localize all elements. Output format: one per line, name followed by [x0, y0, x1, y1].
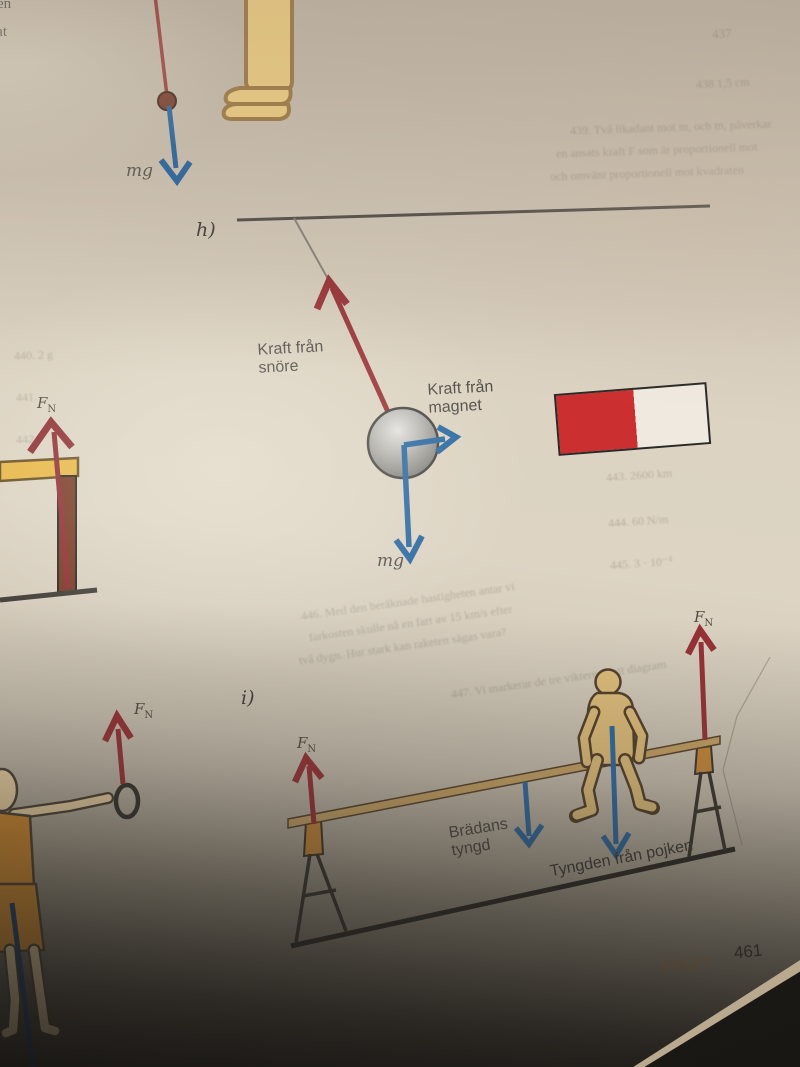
page-edge-text-1: ren — [0, 0, 11, 13]
right-trestle — [689, 746, 725, 857]
left-partial-diagram — [0, 422, 97, 600]
string-force-label: Kraft från snöre — [257, 338, 325, 377]
normal-force-arrow-hand — [105, 716, 131, 784]
standing-legs-figure — [224, 0, 292, 119]
ring-object — [116, 785, 138, 817]
board-weight-arrow — [516, 782, 542, 844]
shorts — [0, 884, 44, 952]
page-edge-text-2: lat — [0, 24, 7, 41]
ceiling-line — [237, 206, 710, 220]
tank-top — [0, 812, 34, 888]
normal-force-label-hand: FN — [134, 700, 153, 721]
person-fragment — [0, 716, 138, 1067]
normal-force-label-right: FN — [694, 608, 713, 629]
section-label-i: i) — [241, 688, 255, 709]
ground-line-i — [291, 849, 735, 946]
gravity-label-h: mg — [377, 552, 404, 571]
normal-force-arrow-right — [688, 630, 714, 740]
string-line — [294, 218, 328, 279]
normal-force-label-table: FN — [37, 394, 56, 415]
textbook-page-photo: 437438 1,5 cm439. Två likadant mot m, oc… — [0, 0, 800, 1067]
magnet-block — [554, 382, 711, 456]
normal-force-label-left: FN — [297, 734, 316, 755]
diagram-artwork — [0, 0, 800, 1067]
gravity-label-top: mg — [126, 162, 153, 181]
diagram-i — [288, 630, 735, 946]
magnet-force-label: Kraft från magnet — [427, 378, 495, 417]
ground-line-left — [0, 590, 97, 600]
string-force-arrow — [317, 281, 388, 412]
page-number: 461 — [733, 941, 763, 964]
section-label-h: h) — [196, 220, 216, 241]
scratch-line — [723, 657, 770, 845]
left-trestle — [296, 819, 346, 943]
gravity-arrow-top — [161, 106, 190, 181]
pendulum-fragment — [155, 0, 190, 181]
